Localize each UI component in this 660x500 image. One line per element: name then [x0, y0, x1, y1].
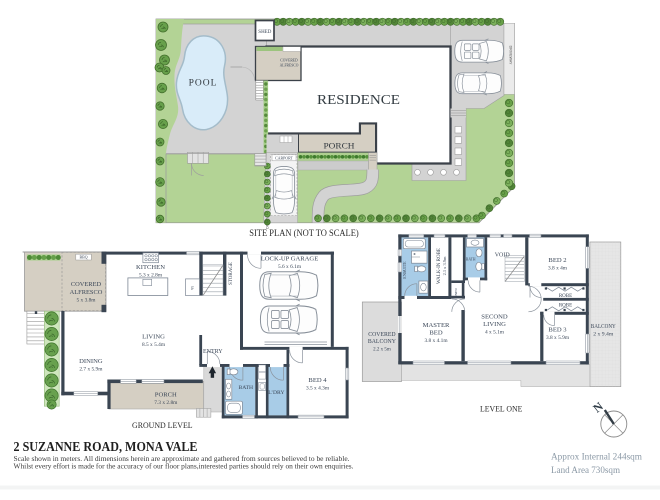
- svg-text:4 x 5.1m: 4 x 5.1m: [485, 330, 505, 336]
- svg-text:5.6 x 6.1m: 5.6 x 6.1m: [278, 264, 302, 270]
- svg-text:BATH: BATH: [466, 258, 476, 262]
- svg-text:PORCH: PORCH: [324, 141, 356, 151]
- svg-text:STORAGE: STORAGE: [229, 262, 234, 285]
- svg-text:KITCHEN: KITCHEN: [136, 264, 165, 271]
- svg-text:ENTRY: ENTRY: [203, 349, 223, 355]
- svg-text:3.8 x 4m: 3.8 x 4m: [548, 266, 568, 272]
- svg-text:POOL: POOL: [189, 79, 218, 89]
- svg-text:ROBE: ROBE: [559, 294, 572, 299]
- svg-text:GROUND LEVEL: GROUND LEVEL: [132, 420, 193, 430]
- svg-text:BBQ: BBQ: [80, 256, 88, 260]
- svg-text:DINING: DINING: [79, 358, 103, 365]
- svg-text:2.1 x 3.9m: 2.1 x 3.9m: [442, 256, 447, 275]
- svg-text:Land Area 730sqm: Land Area 730sqm: [551, 466, 621, 476]
- svg-text:3.8 x 5.9m: 3.8 x 5.9m: [546, 335, 570, 341]
- svg-text:2 SUZANNE ROAD, MONA VALE: 2 SUZANNE ROAD, MONA VALE: [14, 440, 198, 455]
- svg-text:2 x 9.4m: 2 x 9.4m: [593, 332, 613, 337]
- svg-text:DRIVEWAY: DRIVEWAY: [509, 46, 513, 65]
- svg-text:LIVING: LIVING: [142, 334, 165, 341]
- svg-text:2.7 x 5.9m: 2.7 x 5.9m: [79, 367, 103, 373]
- svg-text:VOID: VOID: [495, 252, 511, 258]
- svg-text:CARPORT: CARPORT: [275, 157, 293, 161]
- svg-text:BALCONY: BALCONY: [368, 339, 397, 345]
- svg-text:COVERED: COVERED: [71, 281, 102, 288]
- svg-text:PORCH: PORCH: [155, 392, 177, 399]
- svg-text:Whilst every effort is made fo: Whilst every effort is made for the accu…: [14, 464, 354, 471]
- svg-text:COVERED: COVERED: [368, 332, 395, 338]
- svg-text:BALCONY: BALCONY: [591, 324, 617, 330]
- svg-text:ALFRESCO: ALFRESCO: [70, 289, 103, 296]
- svg-text:ROBE: ROBE: [559, 303, 572, 308]
- svg-text:L’DRY: L’DRY: [268, 390, 284, 396]
- svg-text:Approx Internal 244sqm: Approx Internal 244sqm: [551, 453, 643, 463]
- svg-text:LINEN: LINEN: [454, 288, 458, 299]
- svg-text:5 x 3.8m: 5 x 3.8m: [76, 298, 96, 304]
- svg-text:SECOND: SECOND: [481, 314, 508, 321]
- svg-text:LEVEL ONE: LEVEL ONE: [480, 404, 522, 414]
- svg-text:SITE PLAN (NOT TO SCALE): SITE PLAN (NOT TO SCALE): [249, 228, 359, 239]
- svg-text:BED 2: BED 2: [548, 257, 566, 264]
- svg-text:3.8 x 4.1m: 3.8 x 4.1m: [424, 338, 448, 344]
- svg-text:MASTER: MASTER: [423, 322, 450, 329]
- svg-text:BATH: BATH: [238, 385, 253, 391]
- svg-text:COVERED: COVERED: [280, 58, 298, 62]
- svg-text:2.2 x 5m: 2.2 x 5m: [373, 348, 391, 353]
- svg-text:LOCK-UP GARAGE: LOCK-UP GARAGE: [261, 255, 318, 262]
- svg-text:BED 3: BED 3: [548, 327, 567, 334]
- svg-text:BED 4: BED 4: [308, 377, 327, 384]
- svg-text:F: F: [191, 287, 194, 292]
- svg-text:LIVING: LIVING: [483, 321, 506, 328]
- svg-text:SHED: SHED: [258, 30, 271, 35]
- svg-text:ENSUITE: ENSUITE: [402, 261, 407, 279]
- svg-text:BED: BED: [429, 330, 442, 337]
- svg-text:8.5 x 5.4m: 8.5 x 5.4m: [142, 342, 166, 348]
- svg-text:5.3 x 2.8m: 5.3 x 2.8m: [139, 272, 163, 278]
- svg-text:ALFRESCO: ALFRESCO: [280, 63, 299, 67]
- svg-text:7.3 x 2.8m: 7.3 x 2.8m: [154, 400, 178, 406]
- svg-text:Scale shown in meters. All di: Scale shown in meters. All dimensions he…: [14, 456, 350, 463]
- svg-text:3.5 x 4.3m: 3.5 x 4.3m: [306, 385, 330, 391]
- svg-text:RESIDENCE: RESIDENCE: [317, 92, 400, 107]
- svg-text:N: N: [590, 399, 606, 416]
